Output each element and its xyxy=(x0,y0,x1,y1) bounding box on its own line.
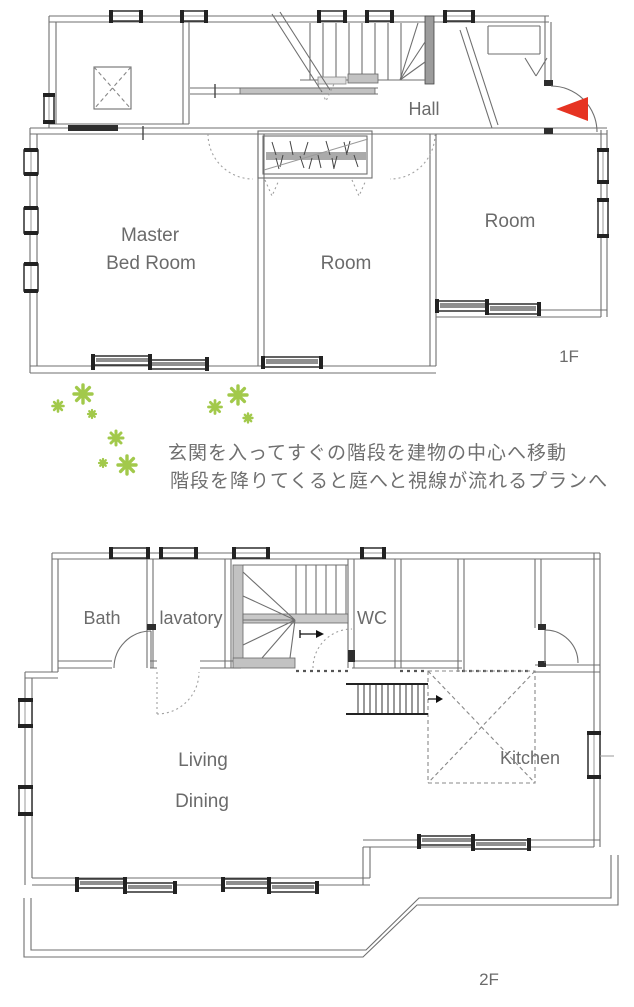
annotation-line-2: 階段を降りてくると庭へと視線が流れるプランへ xyxy=(170,470,608,492)
closet-1f xyxy=(258,131,372,196)
label-living: Living xyxy=(178,750,228,771)
walls-1f xyxy=(30,16,607,373)
label-wc: WC xyxy=(357,608,387,628)
lavatory-door-arc xyxy=(157,672,199,714)
label-master-2: Bed Room xyxy=(106,253,196,274)
annotation-area: 玄関を入ってすぐの階段を建物の中心へ移動 階段を降りてくると庭へと視線が流れるプ… xyxy=(53,385,609,492)
label-room-center: Room xyxy=(321,253,372,274)
label-floor-1f: 1F xyxy=(559,347,579,366)
annotation-line-1: 玄関を入ってすぐの階段を建物の中心へ移動 xyxy=(168,442,567,464)
dark-wall-segment xyxy=(68,125,118,131)
label-kitchen: Kitchen xyxy=(500,748,560,768)
entrance-arrow-icon xyxy=(556,97,588,121)
label-bath: Bath xyxy=(83,608,120,628)
label-dining: Dining xyxy=(175,791,229,812)
wall-ticks-1f xyxy=(143,84,215,140)
hall-wall-fill xyxy=(240,88,375,94)
label-lavatory: lavatory xyxy=(159,608,222,628)
stair-direction-arrow-icon xyxy=(300,630,324,638)
flower-cluster-right xyxy=(209,386,253,423)
entrance-1f xyxy=(544,80,597,134)
floor-plan-drawing: Hall Master Bed Room Room Room 1F 玄関を入って… xyxy=(0,0,634,1007)
floor-1f-plan: Hall Master Bed Room Room Room 1F xyxy=(24,10,609,373)
door-arc-master xyxy=(208,134,253,179)
floor-2f-plan: Bath lavatory WC Living Dining Kitchen 2… xyxy=(18,547,618,989)
balcony-outline xyxy=(24,855,618,957)
flower-cluster-left xyxy=(53,385,137,474)
storage-box-symbol xyxy=(94,67,131,109)
walls-2f xyxy=(25,553,600,885)
label-master-1: Master xyxy=(121,225,180,246)
door-arc-center-room xyxy=(390,134,435,179)
label-room-right: Room xyxy=(485,211,536,232)
living-entry-door xyxy=(538,624,578,667)
bath-door xyxy=(114,624,156,668)
label-floor-2f: 2F xyxy=(479,970,499,989)
label-hall: Hall xyxy=(408,99,439,119)
floor-plan-page: Hall Master Bed Room Room Room 1F 玄関を入って… xyxy=(0,0,634,1007)
staircase-2f xyxy=(233,565,355,668)
